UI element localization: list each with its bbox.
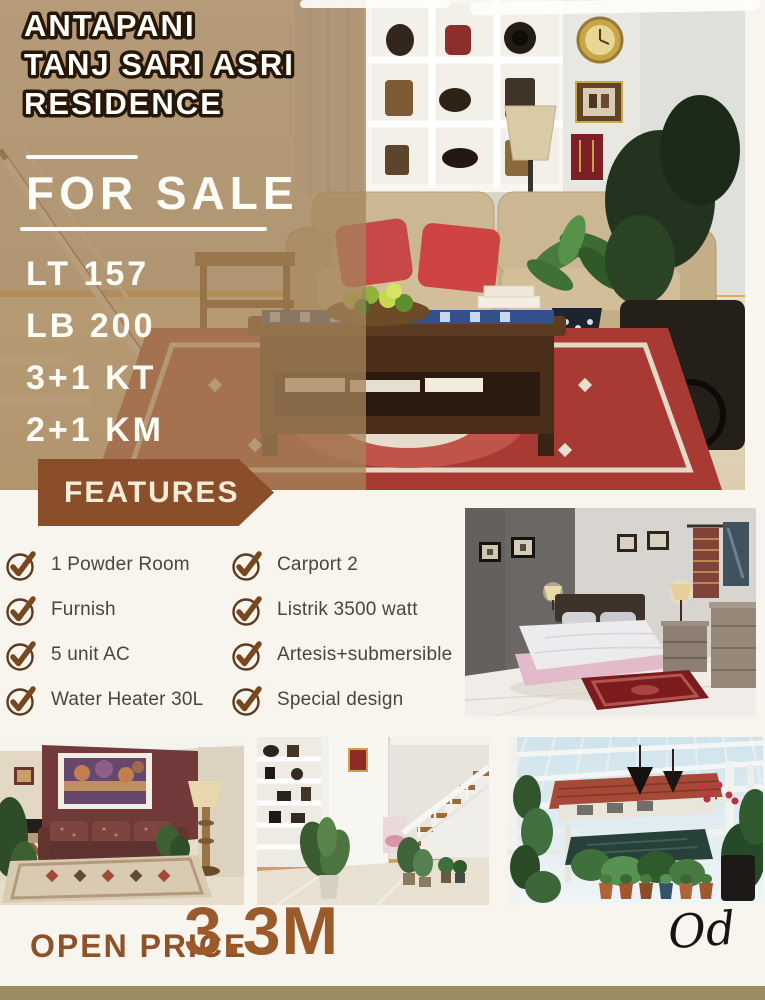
features-ribbon: FEATURES: [38, 459, 274, 526]
feature-label: 1 Powder Room: [51, 554, 190, 576]
check-circle-icon: [230, 637, 266, 673]
feature-item: Special design: [230, 677, 470, 722]
feature-item: Listrik 3500 watt: [230, 587, 470, 632]
feature-item: Furnish: [4, 587, 224, 632]
feature-item: 1 Powder Room: [4, 542, 224, 587]
features-column-right: Carport 2 Listrik 3500 watt Artesis+subm…: [230, 542, 470, 722]
title-line-2: TANJ SARI ASRI: [24, 47, 295, 82]
feature-label: Artesis+submersible: [277, 644, 452, 666]
maroon-living-room-photo: [0, 737, 244, 905]
feature-item: Carport 2: [230, 542, 470, 587]
property-specs: LT 157 LB 200 3+1 KT 2+1 KM: [26, 248, 164, 456]
features-header: FEATURES: [38, 476, 239, 510]
page-title: ANTAPANI TANJ SARI ASRI RESIDENCE: [20, 2, 450, 132]
feature-label: Carport 2: [277, 554, 358, 576]
title-line-1: ANTAPANI: [24, 8, 196, 43]
footer-bar: [0, 986, 765, 1000]
divider: [20, 227, 267, 231]
open-price-value: 3.3M: [184, 892, 339, 970]
spec-land-area: LT 157: [26, 248, 164, 300]
check-circle-icon: [230, 547, 266, 583]
feature-label: Furnish: [51, 599, 116, 621]
feature-label: Water Heater 30L: [51, 689, 203, 711]
check-circle-icon: [230, 592, 266, 628]
feature-label: 5 unit AC: [51, 644, 130, 666]
feature-item: Water Heater 30L: [4, 677, 224, 722]
property-sale-flyer: ANTAPANI TANJ SARI ASRI RESIDENCE FOR SA…: [0, 0, 765, 1000]
feature-label: Listrik 3500 watt: [277, 599, 418, 621]
wall-clock: [578, 18, 622, 62]
divider: [26, 155, 138, 159]
feature-item: Artesis+submersible: [230, 632, 470, 677]
check-circle-icon: [4, 592, 40, 628]
feature-item: 5 unit AC: [4, 632, 224, 677]
check-circle-icon: [4, 547, 40, 583]
spec-building-area: LB 200: [26, 300, 164, 352]
bedroom-photo: [465, 508, 756, 716]
courtyard-garden-photo: [507, 737, 763, 905]
check-circle-icon: [4, 637, 40, 673]
signature: Od: [666, 901, 737, 960]
title-line-3: RESIDENCE: [24, 86, 223, 121]
features-column-left: 1 Powder Room Furnish 5 unit AC Water He…: [4, 542, 224, 722]
check-circle-icon: [4, 682, 40, 718]
spec-bathrooms: 2+1 KM: [26, 404, 164, 456]
check-circle-icon: [230, 682, 266, 718]
spec-bedrooms: 3+1 KT: [26, 352, 164, 404]
feature-label: Special design: [277, 689, 403, 711]
for-sale-banner: FOR SALE: [26, 166, 299, 220]
hallway-stairs-photo: [257, 737, 489, 905]
